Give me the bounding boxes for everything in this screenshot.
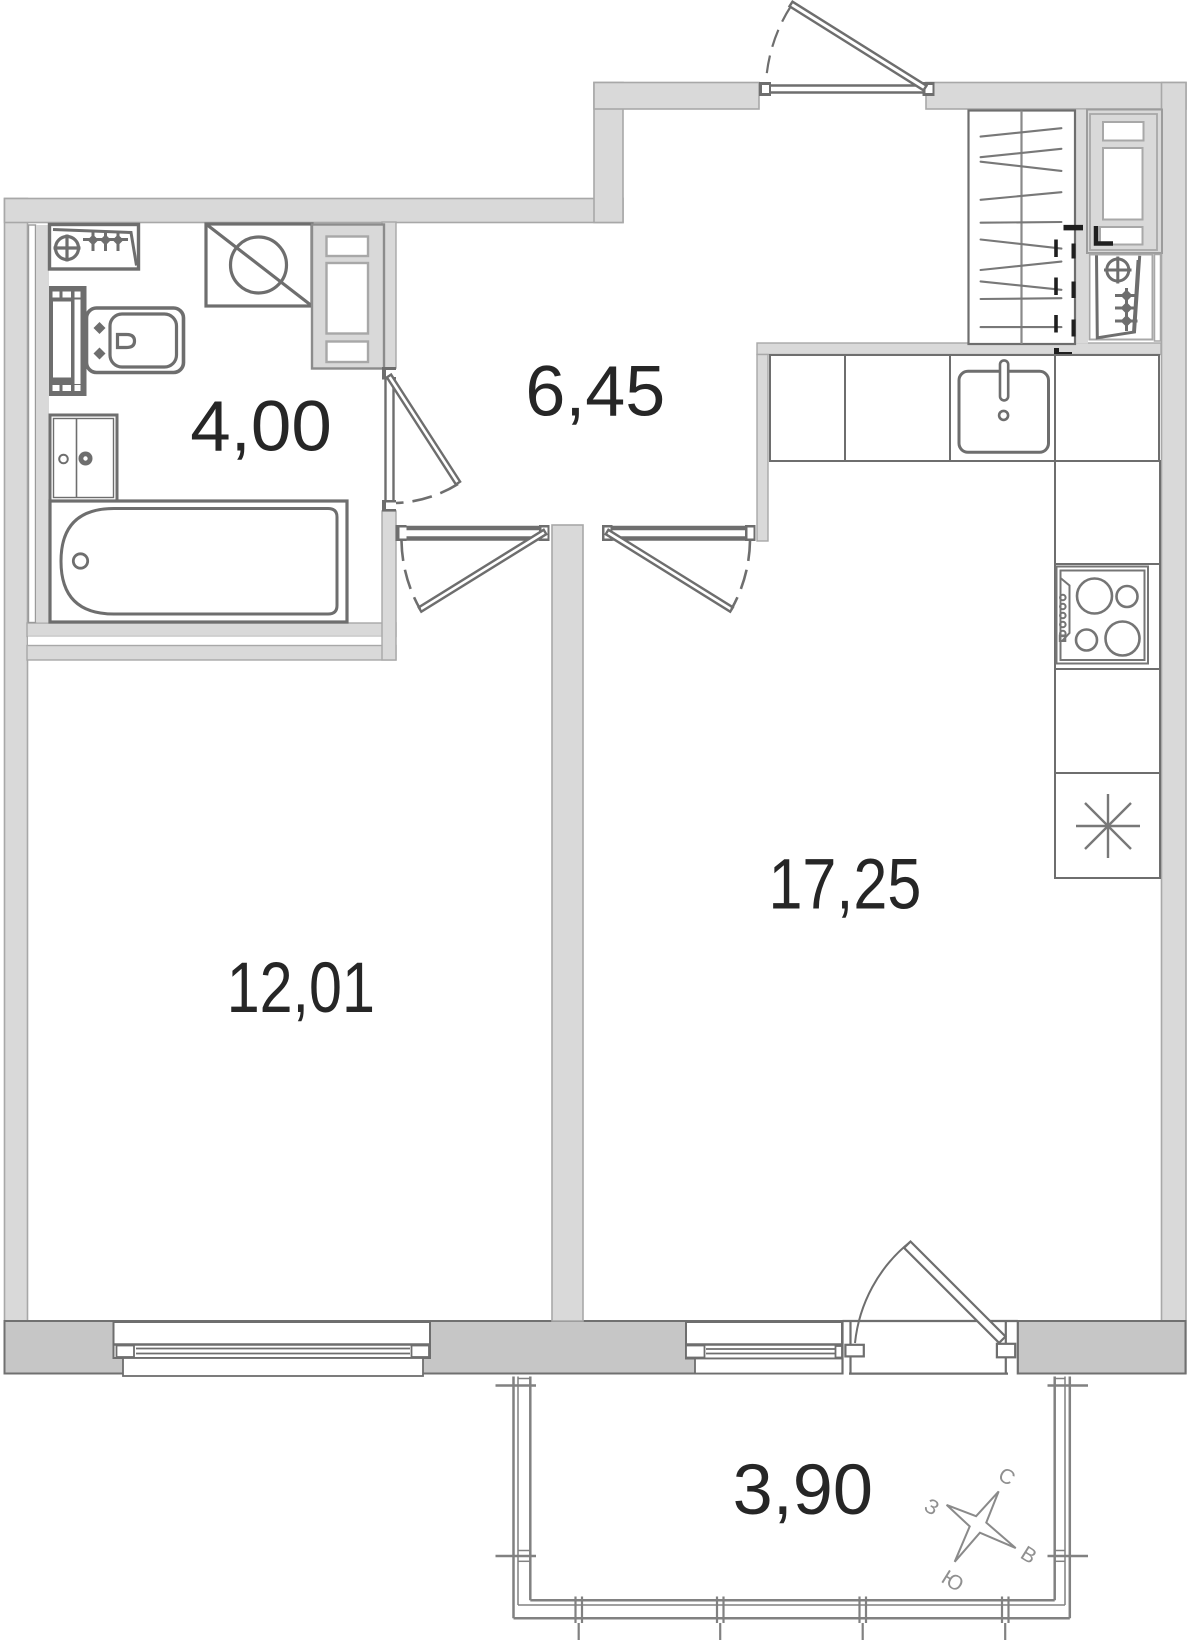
svg-text:6,45: 6,45	[525, 353, 665, 432]
svg-text:3,90: 3,90	[733, 1451, 873, 1530]
svg-text:4,00: 4,00	[190, 388, 332, 467]
svg-text:12,01: 12,01	[227, 949, 375, 1028]
svg-text:17,25: 17,25	[768, 845, 921, 924]
